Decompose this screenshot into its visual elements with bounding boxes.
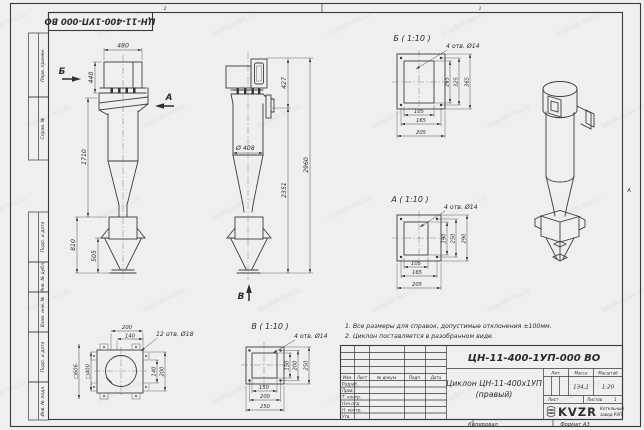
dim-810: 810 — [70, 239, 77, 251]
dim-sq400: □400 — [86, 363, 92, 379]
sheet-frame: 2 1 А Копировал Формат А3 — [11, 4, 641, 429]
view-arrow-v: В — [238, 284, 252, 302]
margin-label-inv-podl: Инв. № подл. — [40, 385, 46, 416]
tb-header-ndoc: № докум. — [376, 375, 397, 380]
detail-a-title: А ( 1:10 ) — [390, 195, 428, 204]
dim-right-140: 140 — [152, 366, 158, 377]
detail-b-holes-note: 4 отв. Ø14 — [446, 42, 480, 50]
zone-label-a: А — [626, 188, 631, 194]
dim-b-165: 165 — [416, 118, 427, 124]
view-arrow-a-label: А — [165, 93, 173, 103]
dim-480: 480 — [117, 43, 129, 50]
zone-label-2: 2 — [164, 6, 167, 12]
detail-view-v: В ( 1:10 ) 4 отв. Ø14 150 200 250 150 20… — [241, 322, 328, 412]
tb-row-nkontr: Н. контр. — [342, 407, 362, 412]
org-logo-text: KVZR — [558, 405, 597, 419]
margin-label-perv: Перв. примен. — [40, 48, 46, 82]
tb-doc-number: ЦН-11-400-1УП-000 ВО — [468, 353, 601, 364]
tb-doc-subtitle: (правый) — [476, 390, 513, 399]
dim-vb-200: 200 — [260, 394, 271, 400]
tb-scale-value: 1:20 — [602, 385, 615, 391]
detail-b-title: Б ( 1:10 ) — [393, 34, 430, 43]
dim-v-200: 200 — [293, 360, 299, 371]
dim-440: 440 — [88, 72, 95, 84]
org-logo: KVZR — [547, 405, 597, 419]
tb-row-prov: Пров. — [342, 388, 354, 393]
drawing-sheet: vozduh-les.ruvozduh-les.ruvozduh-les.ruv… — [0, 0, 644, 430]
margin-label-podp1: Подп. и дата — [40, 221, 46, 252]
notes: 1. Все размеры для справок, допустимые о… — [345, 323, 552, 340]
detail-v-holes-note: 4 отв. Ø14 — [294, 332, 328, 340]
dim-b-105: 105 — [414, 109, 425, 115]
tb-sheets-value: 1 — [614, 397, 617, 402]
dim-b-205: 205 — [416, 130, 427, 136]
margin-label-podp2: Подп. и дата — [40, 341, 46, 372]
tb-scale-label: Масштаб — [598, 370, 618, 375]
dim-d408: Ø 408 — [235, 144, 255, 152]
org-name-line1: Котельный — [600, 406, 624, 411]
note-1: 1. Все размеры для справок, допустимые о… — [345, 323, 552, 330]
tb-mass-label: Масса — [574, 370, 588, 375]
dim-2960: 2960 — [303, 157, 310, 173]
zone-label-1: 1 — [479, 6, 482, 12]
side-view: Ø 408 427 2351 2960 В — [226, 52, 313, 302]
dim-v-250: 250 — [304, 360, 310, 371]
org-name-line2: завод РЭП — [600, 412, 622, 417]
detail-view-a: А ( 1:10 ) 4 отв. Ø14 190 250 290 105 16… — [390, 195, 477, 290]
dim-sq606: □606 — [74, 363, 80, 379]
margin-label-inv-dubl: Инв. № дубл. — [40, 262, 46, 293]
detail-v-title: В ( 1:10 ) — [251, 322, 288, 331]
copied-label: Копировал — [468, 422, 498, 428]
tb-sheet-label: Лист — [547, 397, 559, 402]
dim-a-205: 205 — [412, 282, 423, 288]
tb-header-podp: Подп. — [409, 375, 421, 380]
tb-row-nachotd: Нач.отд. — [342, 401, 360, 406]
top-stamp: ЦН-11-400-1УП-000 ВО — [44, 13, 155, 31]
margin-label-sprav: Справ. № — [40, 117, 46, 139]
dim-vb-150: 150 — [259, 385, 270, 391]
margin-column: Перв. примен. Справ. № Подп. и дата Инв.… — [29, 33, 49, 420]
dim-427: 427 — [281, 77, 288, 89]
title-block: Изм Лист № докум. Подп. Дата Разраб. Про… — [341, 346, 625, 420]
detail-view-b: Б ( 1:10 ) 4 отв. Ø14 265 325 365 105 16… — [392, 34, 480, 138]
view-arrow-b: Б — [59, 67, 81, 82]
detail-a-holes-note: 4 отв. Ø14 — [444, 203, 478, 211]
tb-header-data: Дата — [430, 375, 442, 380]
dim-top-140: 140 — [125, 334, 136, 340]
view-arrow-a: А — [155, 93, 174, 109]
front-view: 480 440 1710 810 505 Б А — [59, 43, 174, 279]
top-view-holes-note: 12 отв. Ø18 — [156, 330, 194, 338]
drawing-svg: 2 1 А Копировал Формат А3 ЦН-11-400-1УП-… — [0, 0, 644, 430]
dim-a-105: 105 — [411, 261, 422, 267]
tb-row-tkontr: Т. контр. — [342, 394, 361, 399]
dim-505: 505 — [91, 250, 98, 262]
view-arrow-v-label: В — [238, 292, 245, 302]
stamp-doc-number: ЦН-11-400-1УП-000 ВО — [44, 17, 155, 27]
dim-vb-250: 250 — [260, 404, 271, 410]
view-arrow-b-label: Б — [59, 67, 66, 77]
dim-right-200: 200 — [160, 366, 166, 377]
dim-top-200: 200 — [122, 325, 133, 331]
tb-header-list: Лист — [356, 375, 368, 380]
dim-250: 250 — [451, 233, 457, 244]
format-label: Формат А3 — [560, 422, 590, 428]
tb-header-izm: Изм — [343, 375, 351, 380]
dim-1710: 1710 — [81, 149, 88, 165]
dim-2351: 2351 — [281, 182, 288, 198]
tb-lit-label: Лит. — [550, 370, 560, 375]
dim-365: 365 — [465, 76, 471, 87]
dim-v-150: 150 — [285, 360, 291, 371]
margin-label-vzam: Взам. инв. № — [40, 296, 46, 327]
isometric-view — [535, 82, 594, 262]
dim-290: 290 — [462, 233, 468, 244]
tb-doc-title: Циклон ЦН-11-400х1УП — [446, 379, 542, 388]
dim-265: 265 — [445, 76, 451, 87]
support-top-view: 200 140 12 отв. Ø18 140 200 □606 □400 — [74, 325, 194, 399]
tb-row-utv: Утв. — [342, 414, 351, 419]
dim-325: 325 — [454, 76, 460, 87]
dim-190: 190 — [442, 233, 448, 244]
tb-mass-value: 134,1 — [573, 385, 589, 391]
dim-a-165: 165 — [412, 270, 423, 276]
tb-sheets-label: Листов — [586, 397, 603, 402]
note-2: 2. Циклон поставляется в разобранном вид… — [345, 332, 494, 340]
tb-row-razrab: Разраб. — [342, 381, 358, 386]
